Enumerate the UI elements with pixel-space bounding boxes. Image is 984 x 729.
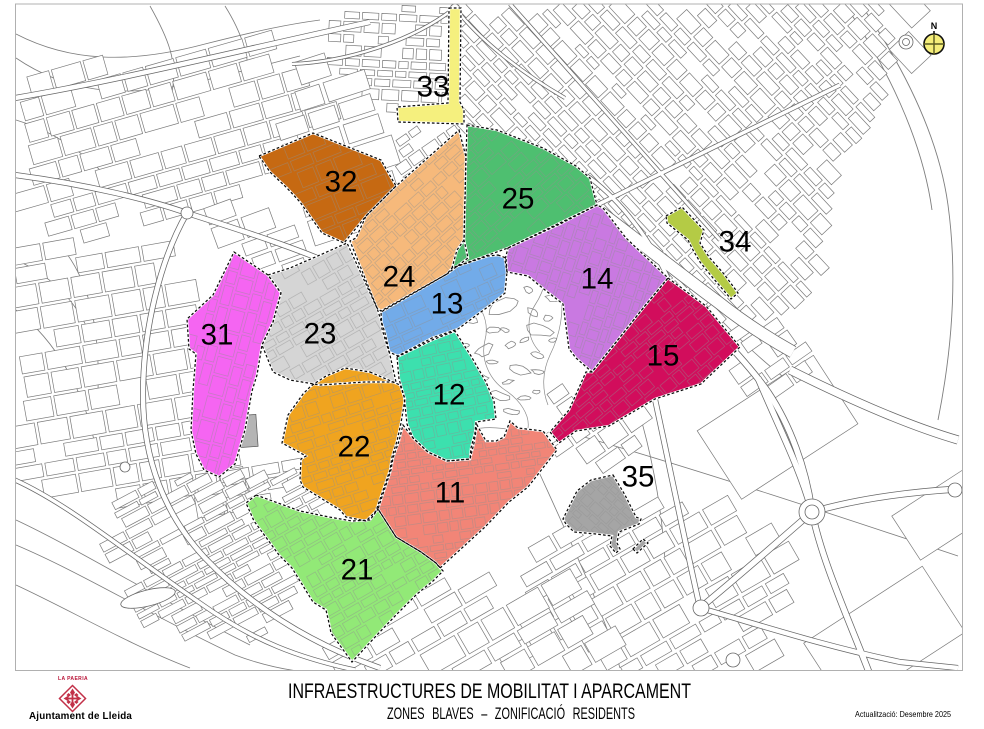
svg-text:25: 25 (502, 183, 535, 216)
svg-text:15: 15 (647, 340, 680, 373)
svg-text:INFRAESTRUCTURES DE MOBILITAT: INFRAESTRUCTURES DE MOBILITAT I APARCAME… (288, 680, 691, 703)
svg-text:21: 21 (341, 554, 374, 587)
svg-text:31: 31 (201, 319, 234, 352)
svg-text:23: 23 (304, 318, 337, 351)
svg-text:ZONES BLAVES – ZONIFICACIÓ RES: ZONES BLAVES – ZONIFICACIÓ RESIDENTS (387, 704, 635, 723)
svg-text:N: N (931, 21, 938, 31)
svg-text:12: 12 (433, 379, 466, 412)
svg-text:32: 32 (325, 166, 358, 199)
svg-text:34: 34 (719, 226, 752, 259)
svg-text:Actualització: Desembre 2025: Actualització: Desembre 2025 (855, 709, 951, 719)
svg-text:22: 22 (338, 431, 371, 464)
svg-text:13: 13 (431, 288, 464, 321)
svg-text:33: 33 (417, 71, 450, 104)
svg-text:35: 35 (622, 461, 655, 494)
svg-text:11: 11 (435, 477, 466, 510)
svg-text:24: 24 (383, 261, 416, 294)
svg-text:14: 14 (581, 263, 614, 296)
